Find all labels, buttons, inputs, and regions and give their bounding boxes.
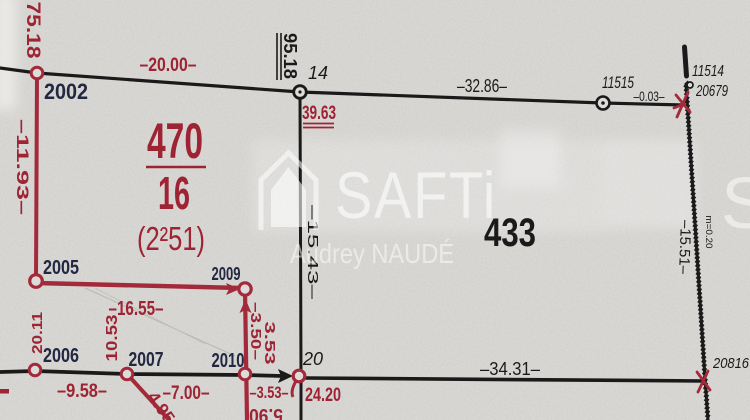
svg-text:–32.86–: –32.86– [457, 76, 507, 96]
svg-text:–7.00–: –7.00– [163, 383, 210, 404]
svg-text:95.18: 95.18 [280, 33, 300, 79]
svg-text:–20.00–: –20.00– [140, 55, 197, 76]
svg-text:–3.53–: –3.53– [250, 383, 289, 402]
svg-text:14: 14 [308, 63, 328, 83]
svg-text:3.53: 3.53 [261, 322, 278, 365]
svg-text:2009: 2009 [212, 264, 241, 284]
svg-text:11514: 11514 [692, 63, 724, 80]
svg-text:(2²51): (2²51) [137, 220, 205, 257]
svg-text:11515: 11515 [602, 73, 634, 92]
svg-text:SAFTi: SAFTi [335, 158, 497, 232]
svg-text:20: 20 [302, 349, 323, 369]
svg-text:10.53: 10.53 [104, 314, 121, 361]
svg-text:20816: 20816 [712, 355, 749, 372]
svg-text:S: S [721, 164, 750, 244]
svg-text:2005: 2005 [43, 257, 79, 279]
svg-text:–11.93–: –11.93– [13, 119, 32, 215]
svg-text:Audrey NAUDÉ: Audrey NAUDÉ [290, 238, 454, 269]
svg-text:24.20: 24.20 [305, 385, 341, 406]
svg-text:16: 16 [158, 167, 190, 219]
svg-text:–9.58–: –9.58– [57, 381, 107, 402]
svg-text:2007: 2007 [129, 349, 164, 371]
svg-text:5.90: 5.90 [249, 404, 283, 420]
svg-text:–34.31–: –34.31– [480, 359, 540, 379]
svg-text:2010: 2010 [212, 350, 245, 372]
svg-text:20679: 20679 [695, 83, 728, 100]
svg-text:39.63: 39.63 [302, 103, 336, 124]
svg-text:–15.51–: –15.51– [675, 220, 694, 275]
svg-text:–0.03–: –0.03– [634, 88, 665, 104]
svg-text:2002: 2002 [44, 79, 88, 104]
svg-text:75.18: 75.18 [22, 2, 43, 59]
svg-text:2006: 2006 [43, 345, 79, 367]
svg-text:m=0.20: m=0.20 [704, 216, 714, 249]
svg-text:470: 470 [147, 113, 203, 169]
